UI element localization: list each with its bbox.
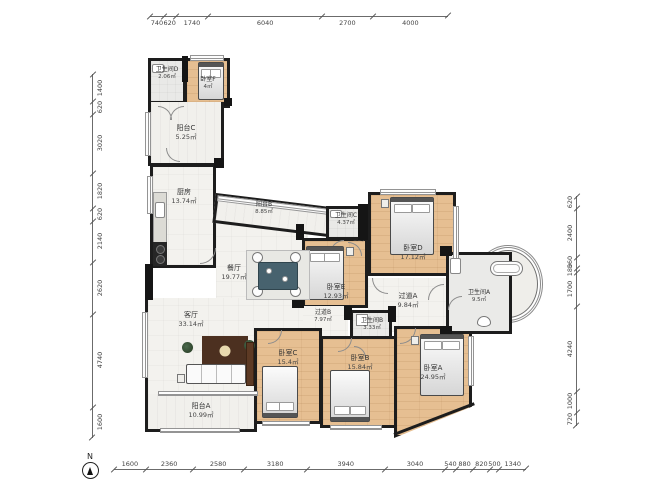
bed-headboard bbox=[307, 247, 343, 251]
dimension-value: 620 bbox=[566, 196, 574, 208]
label-bedroom-a: 卧室A24.95㎡ bbox=[420, 364, 445, 382]
rug bbox=[202, 336, 248, 366]
label-balcony-a: 阳台A10.99㎡ bbox=[188, 402, 213, 420]
dining-table bbox=[258, 262, 298, 290]
label-bathroom-a: 卫生间A9.5㎡ bbox=[468, 289, 490, 304]
plate bbox=[266, 268, 272, 274]
dimension-value: 2620 bbox=[96, 280, 104, 297]
wall-segment bbox=[296, 224, 304, 240]
dimension-segment: 3940 bbox=[307, 469, 385, 470]
window bbox=[145, 112, 151, 156]
window bbox=[262, 421, 310, 426]
dimension-value: 820 bbox=[475, 460, 487, 468]
dimension-segment: 1400 bbox=[92, 74, 93, 101]
bed-headboard bbox=[421, 335, 463, 339]
window bbox=[330, 425, 382, 430]
dimension-segment: 2580 bbox=[193, 469, 244, 470]
dimension-segment: 1740 bbox=[176, 16, 209, 17]
floor-plan: 7406201740604027004000 16002360258031803… bbox=[0, 0, 667, 500]
side-table bbox=[177, 374, 185, 383]
pillow bbox=[279, 402, 294, 411]
compass-circle bbox=[82, 462, 99, 479]
dimension-chain-top: 7406201740604027004000 bbox=[150, 16, 448, 17]
dimension-value: 4000 bbox=[402, 19, 419, 27]
window bbox=[468, 336, 474, 386]
wall-segment bbox=[358, 204, 368, 240]
window bbox=[142, 312, 148, 378]
window bbox=[380, 189, 436, 195]
plant bbox=[182, 342, 193, 353]
dimension-segment: 6040 bbox=[208, 16, 322, 17]
dimension-segment: 2700 bbox=[322, 16, 373, 17]
label-bedroom-b: 卧室B15.84㎡ bbox=[347, 354, 372, 372]
dimension-value: 720 bbox=[566, 413, 574, 425]
plate bbox=[282, 276, 288, 282]
north-arrow-icon bbox=[87, 467, 93, 475]
dimension-segment: 1820 bbox=[92, 173, 93, 209]
wall-segment bbox=[388, 306, 396, 322]
dimension-value: 1820 bbox=[96, 182, 104, 199]
wall-segment bbox=[182, 56, 188, 82]
label-hallway-a: 过道A9.84㎡ bbox=[398, 292, 419, 310]
dimension-value: 620 bbox=[96, 101, 104, 113]
bed-headboard bbox=[391, 198, 433, 202]
dimension-value: 3940 bbox=[338, 460, 355, 468]
label-bedroom-c: 卧室C15.4㎡ bbox=[278, 349, 299, 367]
label-balcony-c: 阳台C5.25㎡ bbox=[176, 124, 197, 142]
pillow bbox=[350, 406, 366, 415]
pillow bbox=[334, 406, 350, 415]
window bbox=[190, 55, 224, 61]
pillow bbox=[442, 341, 460, 350]
dimension-segment: 2620 bbox=[92, 262, 93, 313]
stove bbox=[153, 242, 167, 266]
dimension-segment: 1600 bbox=[114, 469, 146, 470]
dimension-value: 540 bbox=[444, 460, 456, 468]
dimension-segment: 3020 bbox=[92, 114, 93, 173]
dimension-value: 2140 bbox=[96, 233, 104, 250]
bed-symbol bbox=[262, 366, 298, 418]
label-dining: 餐厅19.77㎡ bbox=[221, 264, 246, 282]
dimension-value: 500 bbox=[488, 460, 500, 468]
dimension-value: 3020 bbox=[96, 135, 104, 152]
window bbox=[160, 428, 240, 433]
dimension-chain-bottom: 1600236025803180394030405408808205001340 bbox=[114, 469, 526, 470]
nightstand bbox=[381, 199, 389, 208]
dimension-segment: 1600 bbox=[92, 407, 93, 438]
label-bedroom-e: 卧室E12.93㎡ bbox=[323, 283, 348, 301]
wall-segment bbox=[214, 158, 224, 168]
dimension-chain-right: 6202400560180170042401000720 bbox=[576, 196, 577, 426]
dimension-value: 1000 bbox=[566, 393, 574, 410]
label-bedroom-d: 卧室D17.12㎡ bbox=[400, 244, 425, 262]
pillow bbox=[394, 204, 412, 213]
label-bedroom-f: 卧室F4㎡ bbox=[200, 76, 215, 91]
dimension-value: 880 bbox=[458, 460, 470, 468]
dimension-segment: 2400 bbox=[576, 208, 577, 256]
window bbox=[453, 206, 459, 262]
dimension-segment: 4740 bbox=[92, 314, 93, 407]
dimension-segment: 4240 bbox=[576, 306, 577, 391]
dimension-value: 1340 bbox=[504, 460, 521, 468]
label-bathroom-c: 卫生间C4.37㎡ bbox=[335, 212, 357, 227]
dimension-value: 1700 bbox=[566, 281, 574, 298]
nightstand bbox=[346, 247, 354, 256]
label-balcony-b: 阳台B8.85㎡ bbox=[255, 201, 273, 216]
dimension-value: 740 bbox=[151, 19, 163, 27]
compass-north-label: N bbox=[80, 452, 100, 461]
label-living: 客厅33.14㎡ bbox=[178, 311, 203, 329]
wall-segment bbox=[145, 264, 153, 300]
pillow bbox=[310, 253, 326, 262]
dimension-value: 1600 bbox=[122, 460, 139, 468]
dimension-segment: 2360 bbox=[146, 469, 193, 470]
dimension-value: 2580 bbox=[210, 460, 227, 468]
burner bbox=[156, 245, 165, 254]
dimension-segment: 720 bbox=[576, 412, 577, 427]
pillow bbox=[424, 341, 442, 350]
label-kitchen: 厨房13.74㎡ bbox=[171, 188, 196, 206]
bed-symbol bbox=[330, 370, 370, 422]
label-bathroom-d: 卫生间D2.06㎡ bbox=[156, 66, 179, 81]
wall-segment bbox=[344, 306, 352, 320]
bathtub bbox=[490, 261, 523, 276]
bed-headboard bbox=[199, 63, 223, 67]
dimension-segment: 1700 bbox=[576, 272, 577, 306]
dimension-value: 4740 bbox=[96, 352, 104, 369]
dimension-value: 1400 bbox=[96, 79, 104, 96]
dimension-segment: 3180 bbox=[244, 469, 307, 470]
dimension-value: 620 bbox=[164, 19, 176, 27]
dimension-value: 3040 bbox=[407, 460, 424, 468]
compass: N bbox=[80, 452, 100, 479]
dimension-segment: 3040 bbox=[385, 469, 445, 470]
dimension-value: 620 bbox=[96, 208, 104, 220]
dimension-value: 6040 bbox=[257, 19, 274, 27]
dimension-segment: 1000 bbox=[576, 391, 577, 411]
label-bathroom-b: 卫生间B3.33㎡ bbox=[361, 317, 383, 332]
bed-headboard bbox=[263, 413, 297, 417]
burner bbox=[156, 255, 165, 264]
tv-cabinet bbox=[246, 342, 254, 386]
dimension-value: 2360 bbox=[161, 460, 178, 468]
toilet bbox=[477, 316, 491, 327]
sliding-door bbox=[158, 391, 258, 396]
sofa bbox=[186, 364, 246, 384]
nightstand bbox=[411, 336, 419, 345]
washbasin bbox=[450, 258, 461, 274]
dimension-value: 3180 bbox=[267, 460, 284, 468]
dimension-segment: 4000 bbox=[373, 16, 448, 17]
dimension-value: 1740 bbox=[184, 19, 201, 27]
coffee-table bbox=[220, 346, 231, 357]
pillow bbox=[266, 402, 281, 411]
dimension-value: 2700 bbox=[339, 19, 356, 27]
dimension-value: 1600 bbox=[96, 414, 104, 431]
dimension-segment: 620 bbox=[92, 101, 93, 113]
dimension-segment: 1340 bbox=[499, 469, 526, 470]
label-hallway-b: 过道B7.97㎡ bbox=[314, 309, 332, 324]
kitchen-sink bbox=[155, 202, 165, 218]
bed-headboard bbox=[331, 417, 369, 421]
wall-segment bbox=[224, 98, 232, 106]
dimension-segment: 620 bbox=[92, 208, 93, 220]
dimension-value: 2400 bbox=[566, 224, 574, 241]
pillow bbox=[412, 204, 430, 213]
wall-segment bbox=[440, 246, 452, 256]
dimension-segment: 2140 bbox=[92, 221, 93, 263]
wall-segment bbox=[292, 300, 304, 308]
pillow bbox=[324, 253, 340, 262]
dimension-chain-left: 1400620302018206202140262047401600 bbox=[92, 74, 93, 438]
dimension-value: 4240 bbox=[566, 340, 574, 357]
